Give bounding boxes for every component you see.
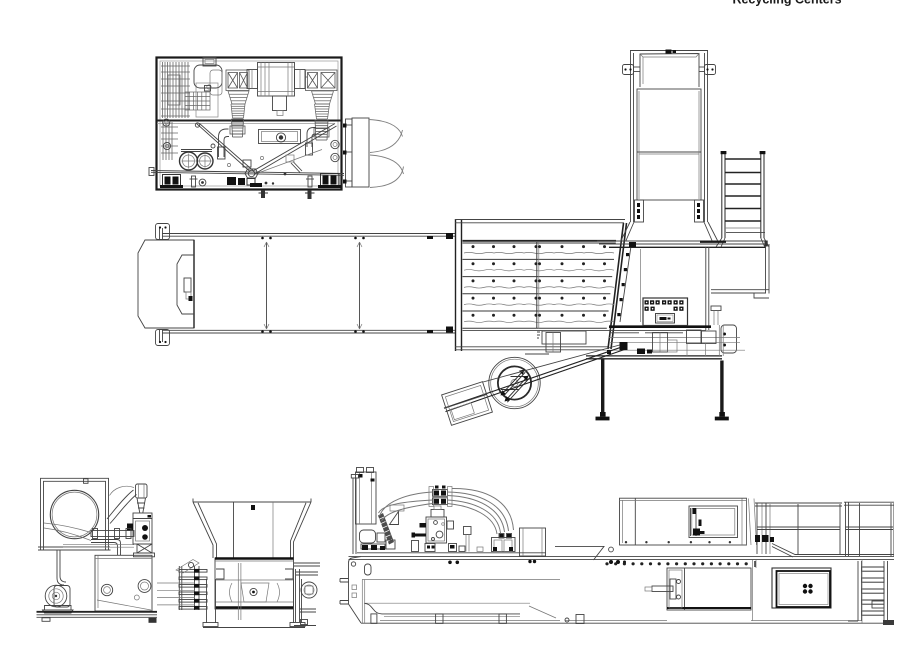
svg-text:Recycling Centers: Recycling Centers: [732, 0, 841, 7]
